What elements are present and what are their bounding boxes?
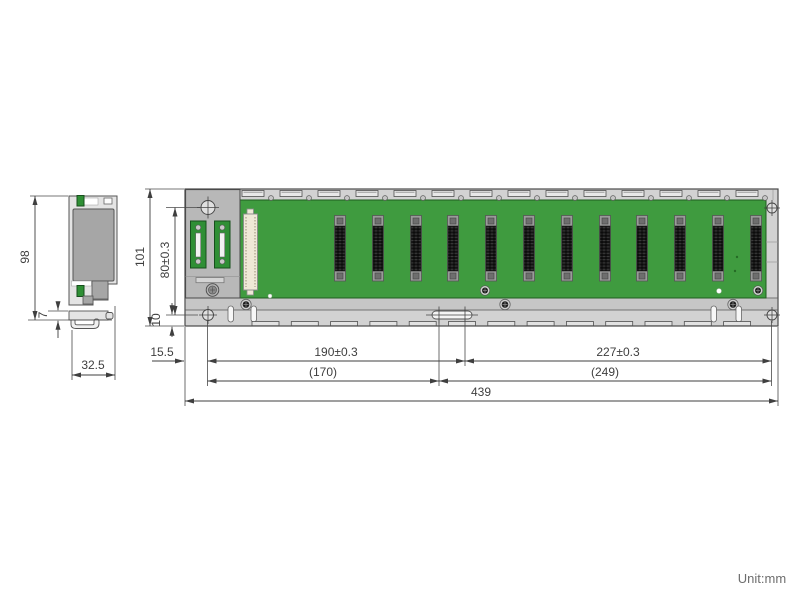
vent-slot bbox=[470, 191, 492, 197]
rail-notch bbox=[228, 306, 234, 322]
technical-drawing: 98 7 32.5 101 80±0.3 10 15.5 190±0.3 227… bbox=[0, 0, 800, 600]
dim-hole-span-right: 227±0.3 bbox=[596, 345, 640, 359]
io-module-connector bbox=[335, 216, 346, 282]
vent-slot bbox=[370, 322, 397, 326]
io-module-connector bbox=[373, 216, 384, 282]
vent-slot bbox=[606, 322, 633, 326]
rail-screw-hole bbox=[725, 196, 730, 201]
rail-screw-hole bbox=[497, 196, 502, 201]
io-module-connector bbox=[713, 216, 724, 282]
vent-slot bbox=[242, 191, 264, 197]
vent-slot bbox=[318, 191, 340, 197]
rail-screw-hole bbox=[687, 196, 692, 201]
rail-screw-hole bbox=[383, 196, 388, 201]
rail-screw-hole bbox=[459, 196, 464, 201]
vent-slot bbox=[356, 191, 378, 197]
vent-slot bbox=[736, 191, 758, 197]
din-plate bbox=[69, 311, 108, 320]
dim-side-height: 98 bbox=[18, 250, 32, 264]
panel-screw bbox=[206, 284, 219, 297]
vent-slot bbox=[331, 322, 358, 326]
vent-slot bbox=[488, 322, 515, 326]
power-connector-right bbox=[215, 221, 231, 268]
rail-screw-hole bbox=[649, 196, 654, 201]
rail-screw-hole bbox=[535, 196, 540, 201]
io-module-connector bbox=[675, 216, 686, 282]
rail-screw-hole bbox=[611, 196, 616, 201]
vent-slot bbox=[546, 191, 568, 197]
io-module-connector bbox=[411, 216, 422, 282]
vent-slot bbox=[394, 191, 416, 197]
rail-screw-hole bbox=[421, 196, 426, 201]
vent-slot bbox=[432, 191, 454, 197]
rail-notch bbox=[736, 306, 742, 322]
vent-slot bbox=[527, 322, 554, 326]
vent-slot bbox=[724, 322, 751, 326]
rail-screw-hole bbox=[269, 196, 274, 201]
pcb-dot bbox=[736, 256, 738, 258]
side-view bbox=[69, 196, 117, 329]
panel-slot bbox=[196, 278, 224, 283]
power-supply-connector bbox=[244, 209, 258, 295]
front-view bbox=[185, 189, 780, 326]
backplane-pcb bbox=[240, 200, 766, 298]
power-connector-left bbox=[191, 221, 207, 268]
dim-hole-span-left: 190±0.3 bbox=[314, 345, 358, 359]
io-module-connector bbox=[448, 216, 459, 282]
rail-screw-hole bbox=[345, 196, 350, 201]
io-module-connector bbox=[524, 216, 535, 282]
pcb-dot bbox=[268, 294, 272, 298]
rail-screw-hole bbox=[573, 196, 578, 201]
vent-slot bbox=[566, 322, 593, 326]
vent-slot bbox=[645, 322, 672, 326]
dim-total-width: 439 bbox=[471, 385, 491, 399]
io-module-connector bbox=[751, 216, 762, 282]
rail-notch bbox=[711, 306, 717, 322]
rail-notch bbox=[251, 306, 257, 322]
dim-ref-right: (249) bbox=[591, 365, 619, 379]
vent-slot bbox=[280, 191, 302, 197]
side-window bbox=[104, 198, 112, 204]
side-latch-mid bbox=[77, 286, 84, 297]
vent-slot bbox=[449, 322, 476, 326]
pcb-dot bbox=[717, 289, 722, 294]
rail-screw-hole bbox=[763, 196, 768, 201]
dim-hole-offset: 10 bbox=[149, 313, 163, 327]
vent-slot bbox=[252, 322, 279, 326]
pcb-screw-right bbox=[753, 286, 763, 296]
dim-side-width: 32.5 bbox=[81, 358, 105, 372]
lower-strip bbox=[186, 299, 777, 310]
rail-screw-hole bbox=[307, 196, 312, 201]
pcb-dot bbox=[734, 270, 736, 272]
vent-slot bbox=[684, 322, 711, 326]
vent-slot bbox=[291, 322, 318, 326]
vent-slot bbox=[660, 191, 682, 197]
unit-note: Unit:mm bbox=[738, 571, 786, 586]
side-body bbox=[73, 209, 114, 281]
io-module-connector bbox=[562, 216, 573, 282]
dim-edge-to-hole: 15.5 bbox=[150, 345, 174, 359]
pcb-screw-center bbox=[480, 286, 490, 296]
io-module-connector bbox=[637, 216, 648, 282]
dim-ref-left: (170) bbox=[309, 365, 337, 379]
drawing-svg: 98 7 32.5 101 80±0.3 10 15.5 190±0.3 227… bbox=[0, 0, 800, 600]
vent-slot bbox=[698, 191, 720, 197]
dim-side-hook: 7 bbox=[36, 311, 50, 318]
io-module-connector bbox=[486, 216, 497, 282]
vent-slot bbox=[508, 191, 530, 197]
vent-slot bbox=[584, 191, 606, 197]
vent-slot bbox=[622, 191, 644, 197]
io-module-connector bbox=[600, 216, 611, 282]
dim-hole-span-vertical: 80±0.3 bbox=[158, 241, 172, 278]
vent-slot bbox=[409, 322, 436, 326]
dim-front-height: 101 bbox=[133, 247, 147, 267]
side-latch-top bbox=[77, 196, 84, 207]
